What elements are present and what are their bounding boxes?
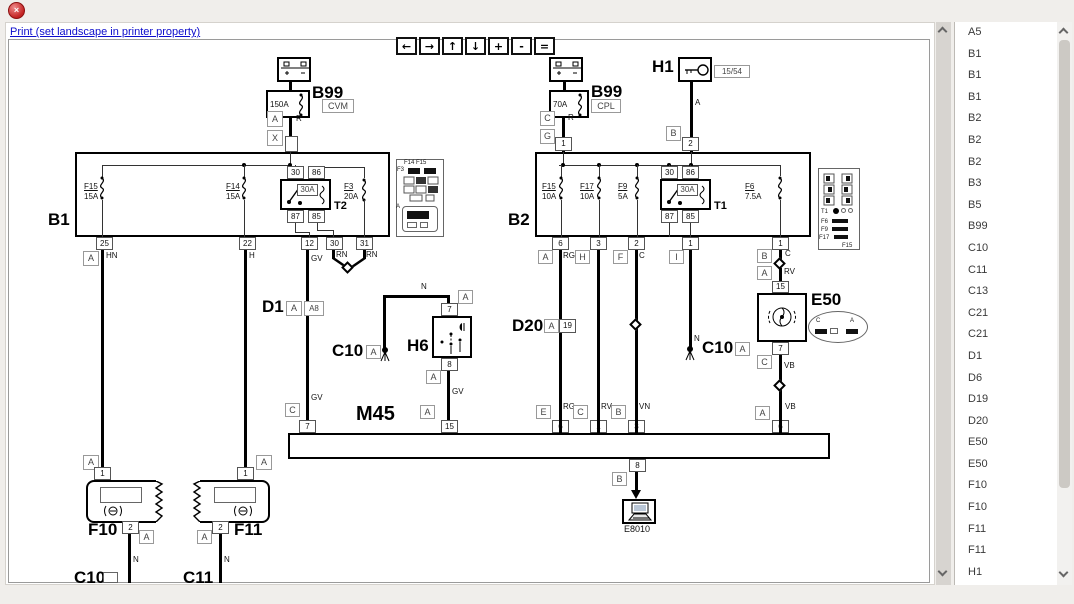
connector-tag-a8: A8 (304, 301, 324, 316)
component-list-item[interactable]: B3 (955, 173, 1057, 195)
code-box-cvm: CVM (322, 99, 354, 113)
relay-fuse-rating: 30A (677, 184, 698, 196)
wire-segment (637, 200, 638, 237)
relay-pin-30: 30 (287, 166, 304, 179)
pin-15: 15 (441, 420, 458, 433)
wire-label-gv: GV (311, 394, 323, 402)
relay-grid-icon (822, 172, 856, 206)
connector-tag-a: A (267, 111, 283, 127)
pin-25: 25 (96, 237, 113, 250)
component-list-item[interactable]: C11 (955, 260, 1057, 282)
inset-label-t1: T1 (821, 209, 828, 215)
lamp-unit-e50 (757, 293, 807, 342)
component-list-item[interactable]: B5 (955, 195, 1057, 217)
connector-tag-a: A (458, 290, 473, 304)
pin-box (103, 572, 118, 583)
wire-segment (333, 230, 334, 237)
wire-segment (690, 223, 691, 237)
inset-label-c: C (816, 318, 820, 324)
switch-h6 (432, 316, 472, 358)
wire-segment (635, 472, 638, 490)
connector-terminal (407, 211, 429, 219)
fuse-icon (359, 178, 369, 202)
pin-2: 2 (682, 137, 699, 151)
toolbar-button[interactable]: ← (396, 37, 417, 55)
torn-edge (192, 481, 202, 522)
wire-label-n: N (224, 556, 230, 564)
wire-segment (317, 230, 334, 231)
ground-icon (683, 351, 697, 362)
wire-segment (780, 200, 781, 237)
fuse-icon (575, 93, 585, 117)
torn-edge (154, 481, 164, 522)
connector-tag-c: C (573, 405, 588, 419)
connector-tag-a: A (735, 342, 750, 356)
relay-pin-86: 86 (308, 166, 325, 179)
connector-pictorial (402, 206, 438, 232)
battery-symbol (549, 57, 583, 82)
main-scrollbar[interactable] (936, 22, 951, 585)
component-label-c11: C11 (183, 569, 213, 583)
arrow-down-icon (631, 490, 641, 499)
computer-icon (626, 502, 654, 522)
component-label-e8010: E8010 (624, 525, 650, 534)
wire-label-c: C (785, 250, 791, 258)
wire-rv (597, 250, 600, 433)
wire-label-vb: VB (785, 403, 796, 411)
connector-face-inset (808, 311, 868, 343)
component-label-f11: F11 (234, 521, 262, 538)
relay-pin-85: 85 (308, 210, 325, 223)
connector-terminal (846, 329, 858, 334)
pin-12: 12 (301, 237, 318, 250)
bulb-icon (232, 504, 254, 518)
wire-rv (779, 268, 782, 282)
pin-2: 2 (212, 521, 229, 534)
connector-terminal (815, 329, 827, 334)
fuse-icon (556, 176, 566, 200)
scroll-up-icon[interactable] (1059, 28, 1069, 38)
wire-label-rg: RG (563, 252, 575, 260)
connector-tag-a: A (83, 251, 99, 266)
relay-t1: 30A (660, 179, 711, 210)
wire-label-n: N (694, 335, 700, 343)
pin-1: 1 (682, 237, 699, 250)
scroll-down-icon[interactable] (938, 567, 948, 577)
fan-motor-icon (767, 302, 797, 332)
component-list-item[interactable]: D20 (955, 411, 1057, 433)
fuse-amp: 15A (84, 193, 98, 201)
relay-pin-30: 30 (661, 166, 678, 179)
wire-segment (244, 200, 245, 237)
component-label-c10: C10 (702, 339, 733, 356)
toolbar-button[interactable]: - (511, 37, 532, 55)
component-list-item[interactable]: H1 (955, 562, 1057, 584)
component-list-item[interactable]: E50 (955, 454, 1057, 476)
wire-label-rv: RV (784, 268, 795, 276)
component-label-b1: B1 (48, 211, 70, 228)
component-list-item[interactable]: C10 (955, 238, 1057, 260)
wire-hn (101, 250, 104, 467)
component-label-t1: T1 (714, 201, 727, 212)
wire-label-gv: GV (311, 255, 323, 263)
component-list-item[interactable]: B2 (955, 152, 1057, 174)
inset-dot (833, 208, 839, 214)
code-box-15-54: 15/54 (714, 65, 750, 78)
connector-tag-a: A (256, 455, 272, 470)
wire-gv (306, 250, 309, 433)
toolbar-button[interactable]: = (534, 37, 555, 55)
component-list-item[interactable]: C13 (955, 281, 1057, 303)
fuse-name: F3 (344, 183, 353, 191)
component-label-e50: E50 (811, 291, 841, 308)
scrollbar-thumb[interactable] (1059, 40, 1070, 488)
battery-symbol (277, 57, 311, 82)
bulb-icon (102, 504, 124, 518)
toolbar-button[interactable]: → (419, 37, 440, 55)
connector-tag-a: A (757, 266, 772, 280)
pin-30: 30 (326, 237, 343, 250)
connector-tag-a: A (538, 250, 553, 264)
battery-icon (280, 60, 310, 81)
wire-segment (289, 82, 292, 90)
control-unit-m45 (288, 433, 830, 459)
fuse-name: F15 (542, 183, 556, 191)
pin-6: 6 (552, 237, 569, 250)
component-list-item[interactable]: B99 (955, 216, 1057, 238)
pin-7: 7 (441, 303, 458, 316)
wire-segment (599, 200, 600, 237)
fuse-amp: 7.5A (745, 193, 761, 201)
diagnostic-e8010 (622, 499, 656, 524)
relay-pin-87: 87 (661, 210, 678, 223)
pin-7: 7 (772, 342, 789, 355)
connector-tag-a: A (426, 370, 441, 384)
wire-segment (103, 165, 291, 166)
pin-3: 3 (590, 237, 607, 250)
connector-cavity (420, 222, 428, 228)
fuse-name: F14 (226, 183, 240, 191)
pin-22: 22 (239, 237, 256, 250)
connector-cavity (830, 328, 838, 334)
component-list-item[interactable]: E50 (955, 432, 1057, 454)
component-list-item[interactable]: F10 (955, 475, 1057, 497)
fuse-name: F15 (84, 183, 98, 191)
pin-1: 1 (237, 467, 254, 480)
component-label-d1: D1 (262, 298, 284, 315)
fuse-amp: 10A (542, 193, 556, 201)
component-list-item[interactable]: C21 (955, 324, 1057, 346)
fuse-amp: 15A (226, 193, 240, 201)
component-label-t2: T2 (334, 201, 347, 212)
component-list-item[interactable]: C21 (955, 303, 1057, 325)
wire-label-h: H (249, 252, 255, 260)
relay-pin-85: 85 (682, 210, 699, 223)
component-label-c10: C10 (74, 569, 105, 583)
print-link[interactable]: Print (set landscape in printer property… (10, 26, 200, 38)
fuse-name: F9 (618, 183, 627, 191)
connector-tag-b: B (611, 405, 626, 419)
wire-segment (317, 223, 318, 230)
wire-label-gv: GV (452, 388, 464, 396)
connector-tag-c: C (285, 403, 300, 417)
connector-tag-a: A (139, 530, 154, 544)
wire-n (383, 297, 386, 350)
ignition-switch-h1 (678, 57, 712, 82)
connector-tag-b: B (666, 126, 681, 141)
component-label-b99: B99 (591, 83, 622, 100)
wire-n (128, 534, 131, 583)
wire-label-rn: RN (336, 251, 348, 259)
fuse-icon (594, 176, 604, 200)
component-list-item[interactable]: F11 (955, 540, 1057, 562)
connector-tag-a: A (544, 319, 559, 333)
connector-tag-c: C (540, 111, 555, 126)
wire-label-vb: VB (784, 362, 795, 370)
connector-tag-e: E (536, 405, 551, 419)
toolbar-button[interactable]: + (488, 37, 509, 55)
connector-tag-g: G (540, 129, 555, 144)
wire-segment (102, 200, 103, 237)
inset-bar (832, 227, 848, 231)
component-list-item[interactable]: F11 (955, 519, 1057, 541)
component-label-f10: F10 (88, 521, 117, 538)
list-scrollbar[interactable] (1057, 22, 1072, 585)
inset-label-a: A (396, 204, 400, 210)
pin-8: 8 (629, 459, 646, 472)
bulb-housing (214, 487, 256, 503)
wire-segment (561, 200, 562, 237)
wire-label-a: A (695, 99, 700, 107)
pin-15: 15 (772, 281, 789, 293)
connector-tag-i: I (669, 250, 684, 264)
fuse-name: F6 (745, 183, 754, 191)
code-box-cpl: CPL (591, 99, 621, 113)
connector-tag-h: H (575, 250, 590, 264)
pin-box (285, 136, 298, 152)
scroll-down-icon[interactable] (1059, 568, 1069, 578)
inset-circle (848, 208, 853, 213)
close-icon[interactable]: × (8, 2, 25, 19)
wire-label-c: C (639, 252, 645, 260)
wire-segment (563, 82, 566, 90)
relay-fuse-rating: 30A (297, 184, 318, 196)
component-list-item[interactable]: D19 (955, 389, 1057, 411)
component-list-item[interactable]: B1 (955, 87, 1057, 109)
wire-label-vn: VN (639, 403, 650, 411)
ground-icon (378, 352, 392, 363)
relay-pin-87: 87 (287, 210, 304, 223)
wire-segment (295, 223, 296, 232)
wire-rg (559, 250, 562, 433)
pin-7: 7 (299, 420, 316, 433)
connector-tag-a: A (286, 301, 302, 316)
fuse-icon (632, 176, 642, 200)
inset-label-f9: F9 (821, 227, 828, 233)
wire-label-hn: HN (106, 252, 118, 260)
fuse-icon (97, 176, 107, 200)
fuse-rating: 70A (553, 101, 567, 109)
wire-segment (295, 232, 309, 233)
inset-label-a: A (850, 318, 854, 324)
key-icon (681, 60, 711, 80)
fuse-amp: 5A (618, 193, 628, 201)
wire-vb (779, 355, 782, 433)
inset-label-f15: F15 (842, 243, 852, 249)
component-list-item[interactable]: D1 (955, 346, 1057, 368)
connector-cavity (407, 222, 417, 228)
connector-tag-b: B (757, 249, 772, 263)
inset-caption: F14 F15 (404, 160, 426, 166)
wire-segment (364, 167, 365, 178)
toolbar-button[interactable]: ↓ (465, 37, 486, 55)
fuse-grid-icon (402, 167, 442, 203)
component-list-item[interactable]: B2 (955, 108, 1057, 130)
wire-label-r: R (296, 115, 302, 123)
inset-circle (841, 208, 846, 213)
fuse-rating: 150A (270, 101, 289, 109)
component-list-item[interactable]: B1 (955, 44, 1057, 66)
inset-bar (832, 219, 848, 223)
component-list-item[interactable]: B2 (955, 130, 1057, 152)
wire-h (244, 250, 247, 467)
wire-segment (669, 223, 670, 237)
component-label-h1: H1 (652, 58, 674, 75)
connector-tag-f: F (613, 250, 628, 264)
component-label-d20: D20 (512, 317, 543, 334)
wire-label-r: R (568, 114, 574, 122)
bulb-housing (100, 487, 142, 503)
pin-2: 2 (122, 521, 139, 534)
component-list-item[interactable]: D6 (955, 368, 1057, 390)
wire-label-n: N (133, 556, 139, 564)
pin-8: 8 (441, 358, 458, 371)
component-label-c10: C10 (332, 342, 363, 359)
component-list-item[interactable]: F10 (955, 497, 1057, 519)
pin-1: 1 (94, 467, 111, 480)
component-label-h6: H6 (407, 337, 429, 354)
relay-pin-86: 86 (682, 166, 699, 179)
wire-label-rn: RN (366, 251, 378, 259)
connector-tag-a: A (420, 405, 435, 419)
fuse-amp: 10A (580, 193, 594, 201)
component-label-m45: M45 (356, 404, 395, 424)
inset-label-f17: F17 (819, 235, 829, 241)
app-window: { "chrome": { "close_icon": "×", "print_… (0, 0, 1074, 604)
diagram-toolbar: ←→↑↓+-= (396, 37, 555, 55)
inset-label-f6: F6 (821, 219, 828, 225)
wire-label-n: N (421, 283, 427, 291)
fuse-icon (239, 176, 249, 200)
wire-n (383, 295, 450, 298)
pin-1: 1 (555, 137, 572, 151)
connector-tag-a: A (197, 530, 212, 544)
scroll-up-icon[interactable] (938, 27, 948, 37)
connector-tag-b: B (612, 472, 627, 486)
connector-tag-c: C (757, 355, 772, 369)
switch-contacts-icon (438, 330, 468, 356)
fuse-icon (775, 176, 785, 200)
clipped-label: C11 (183, 569, 225, 583)
connector-tag-x: X (267, 130, 283, 146)
relay-t2: 30A (280, 179, 331, 210)
connector-tag-a: A (755, 406, 770, 420)
component-list-item[interactable]: A5 (955, 22, 1057, 44)
component-list: A5B1B1B1B2B2B2B3B5B99C10C11C13C21C21D1D6… (954, 22, 1057, 585)
wire-segment (780, 165, 781, 176)
toolbar-button[interactable]: ↑ (442, 37, 463, 55)
inset-bar (834, 235, 848, 239)
pin-19: 19 (559, 319, 576, 333)
component-list-item[interactable]: B1 (955, 65, 1057, 87)
wire-segment (364, 200, 365, 237)
fuse-name: F17 (580, 183, 594, 191)
component-label-b2: B2 (508, 211, 530, 228)
pin-2: 2 (628, 237, 645, 250)
battery-icon (552, 60, 582, 81)
wire-vn (635, 250, 638, 433)
wire-n (689, 250, 692, 348)
pin-31: 31 (356, 237, 373, 250)
